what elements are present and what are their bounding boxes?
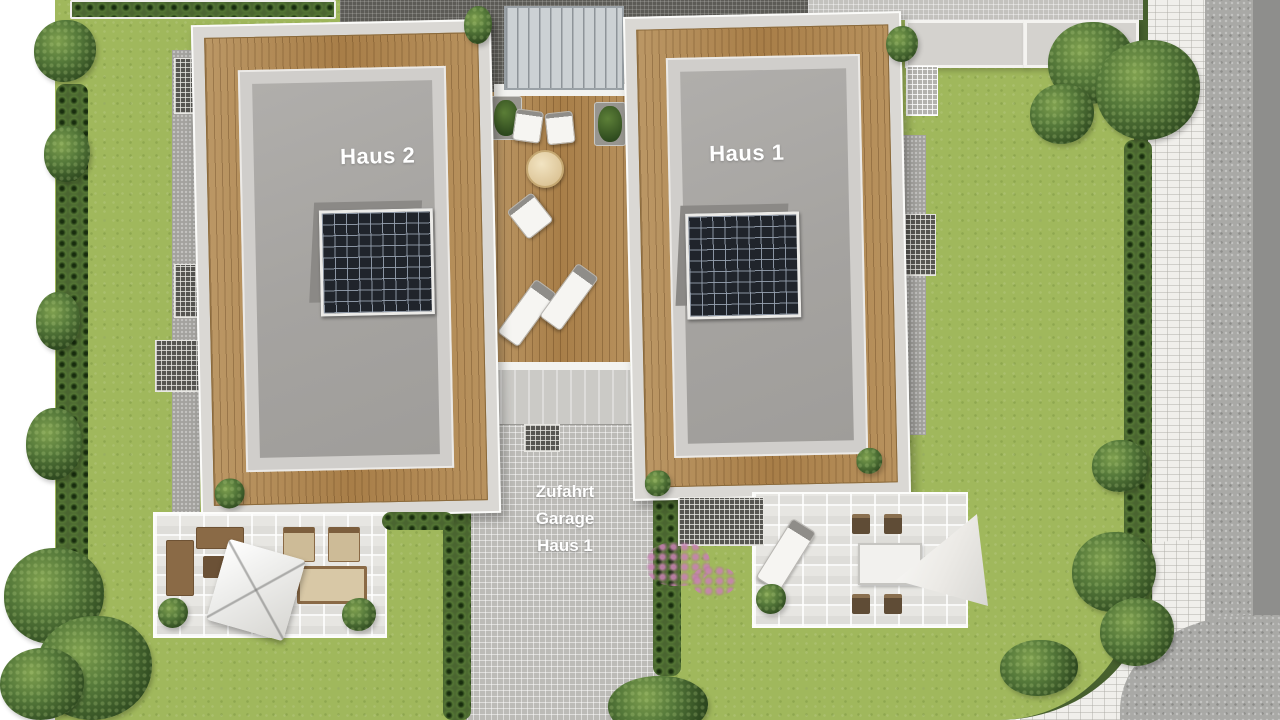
garden-chair: [328, 527, 360, 562]
plant: [598, 106, 622, 142]
solar-panel: [319, 208, 435, 316]
dining-chair: [852, 594, 870, 614]
light-well-grate: [904, 214, 936, 276]
round-table: [526, 150, 564, 188]
flower-shrub: [692, 566, 736, 596]
carport-roof: [905, 20, 1026, 68]
house-1-label: Haus 1: [709, 140, 785, 168]
driveway-label-line1: Zufahrt: [497, 478, 633, 505]
dining-chair: [852, 514, 870, 534]
driveway-label-line3: Haus 1: [497, 532, 633, 559]
garden-sofa: [166, 540, 194, 596]
deck-chair: [544, 111, 575, 146]
light-well-grate: [524, 424, 560, 452]
entrance-canopy: [504, 6, 624, 90]
deck-chair: [512, 108, 544, 144]
road-edge: [1253, 0, 1280, 720]
dining-chair: [884, 594, 902, 614]
solar-panel: [685, 211, 801, 319]
bush: [644, 470, 671, 497]
site-plan-canvas: Zufahrt Garage Haus 1 Haus 2 Haus 1: [0, 0, 1280, 720]
planter-hedge-top-left: [70, 0, 336, 19]
house-2-label: Haus 2: [340, 143, 416, 171]
house-1: Haus 1: [623, 11, 911, 501]
driveway-label-line2: Garage: [497, 505, 633, 532]
hedge: [382, 512, 454, 530]
light-well-grate: [906, 66, 938, 116]
house-2: Haus 2: [191, 19, 501, 519]
driveway-label: Zufahrt Garage Haus 1: [497, 478, 633, 559]
light-well-grate: [678, 497, 764, 546]
dining-chair: [884, 514, 902, 534]
deck-planter: [594, 102, 626, 146]
garage-apron: [486, 366, 644, 428]
